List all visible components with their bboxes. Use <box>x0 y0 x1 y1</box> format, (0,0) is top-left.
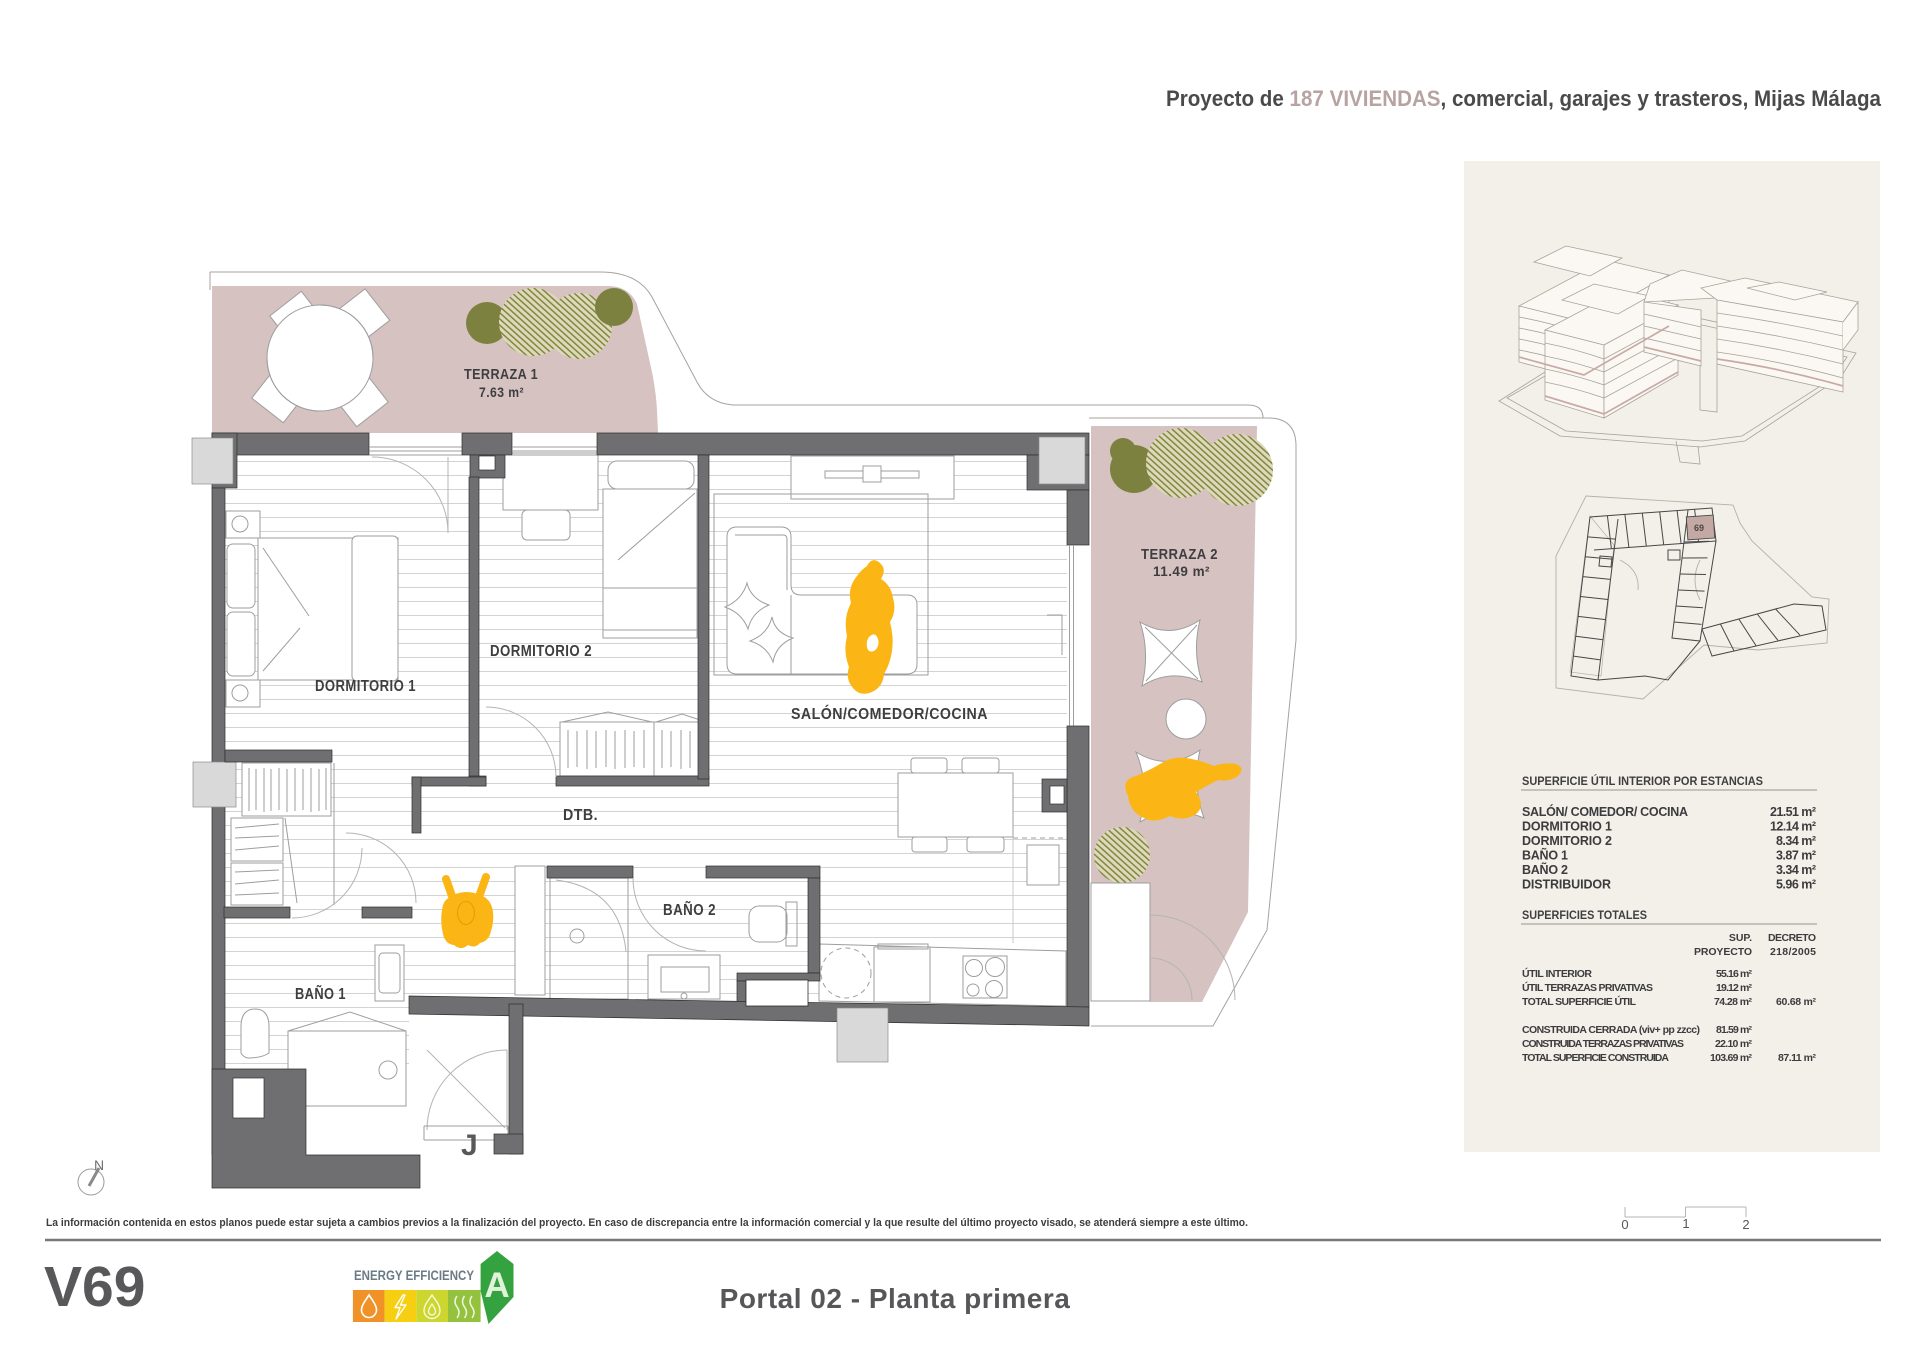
svg-text:TERRAZA 2: TERRAZA 2 <box>1141 546 1218 563</box>
svg-text:DTB.: DTB. <box>563 807 598 824</box>
svg-text:BAÑO 2: BAÑO 2 <box>1522 862 1568 877</box>
svg-text:CONSTRUIDA TERRAZAS PRIVATIVAS: CONSTRUIDA TERRAZAS PRIVATIVAS <box>1522 1038 1684 1050</box>
svg-text:74.28 m²: 74.28 m² <box>1714 996 1753 1008</box>
svg-text:BAÑO 1: BAÑO 1 <box>295 985 346 1003</box>
svg-text:87.11 m²: 87.11 m² <box>1778 1052 1817 1064</box>
svg-text:DORMITORIO 1: DORMITORIO 1 <box>1522 820 1612 834</box>
svg-text:8.34 m²: 8.34 m² <box>1776 834 1816 848</box>
svg-text:60.68 m²: 60.68 m² <box>1776 996 1817 1008</box>
svg-text:TOTAL SUPERFICIE CONSTRUIDA: TOTAL SUPERFICIE CONSTRUIDA <box>1522 1052 1669 1064</box>
svg-text:SALÓN/COMEDOR/COCINA: SALÓN/COMEDOR/COCINA <box>791 705 988 723</box>
svg-text:103.69 m²: 103.69 m² <box>1710 1052 1753 1064</box>
svg-text:3.34 m²: 3.34 m² <box>1776 863 1816 877</box>
svg-text:A: A <box>484 1266 509 1305</box>
svg-text:12.14 m²: 12.14 m² <box>1770 820 1816 834</box>
svg-text:218/2005: 218/2005 <box>1770 946 1816 958</box>
svg-text:DORMITORIO 2: DORMITORIO 2 <box>1522 834 1612 848</box>
svg-text:81.59 m²: 81.59 m² <box>1716 1024 1753 1036</box>
svg-text:DISTRIBUIDOR: DISTRIBUIDOR <box>1522 878 1611 892</box>
svg-text:DECRETO: DECRETO <box>1768 932 1816 944</box>
svg-text:DORMITORIO 2: DORMITORIO 2 <box>490 643 592 660</box>
svg-text:SUPERFICIES TOTALES: SUPERFICIES TOTALES <box>1522 908 1647 922</box>
svg-text:55.16 m²: 55.16 m² <box>1716 968 1753 980</box>
svg-text:0: 0 <box>1621 1217 1628 1232</box>
svg-text:CONSTRUIDA CERRADA (viv+ pp zz: CONSTRUIDA CERRADA (viv+ pp zzcc) <box>1522 1024 1700 1036</box>
svg-text:N: N <box>94 1157 104 1173</box>
svg-text:21.51 m²: 21.51 m² <box>1770 805 1816 819</box>
svg-text:ÚTIL TERRAZAS PRIVATIVAS: ÚTIL TERRAZAS PRIVATIVAS <box>1522 981 1653 994</box>
svg-text:5.96 m²: 5.96 m² <box>1776 878 1816 892</box>
svg-text:ENERGY EFFICIENCY: ENERGY EFFICIENCY <box>354 1268 474 1283</box>
svg-text:BAÑO 2: BAÑO 2 <box>663 901 716 919</box>
svg-text:19.12 m²: 19.12 m² <box>1716 982 1753 994</box>
svg-text:J: J <box>461 1129 478 1162</box>
svg-text:3.87 m²: 3.87 m² <box>1776 849 1816 863</box>
svg-text:ÚTIL INTERIOR: ÚTIL INTERIOR <box>1522 967 1592 980</box>
svg-text:SALÓN/ COMEDOR/ COCINA: SALÓN/ COMEDOR/ COCINA <box>1522 804 1688 819</box>
svg-text:Portal 02 - Planta primera: Portal 02 - Planta primera <box>720 1283 1071 1314</box>
svg-text:V69: V69 <box>44 1255 145 1319</box>
svg-text:22.10 m²: 22.10 m² <box>1715 1038 1753 1050</box>
svg-text:PROYECTO: PROYECTO <box>1694 946 1752 958</box>
svg-text:TOTAL SUPERFICIE ÚTIL: TOTAL SUPERFICIE ÚTIL <box>1522 995 1637 1008</box>
svg-text:69: 69 <box>1694 523 1704 533</box>
svg-text:2: 2 <box>1742 1217 1749 1232</box>
svg-text:SUPERFICIE ÚTIL INTERIOR POR E: SUPERFICIE ÚTIL INTERIOR POR ESTANCIAS <box>1522 773 1763 788</box>
svg-text:TERRAZA 1: TERRAZA 1 <box>464 366 538 383</box>
svg-text:Proyecto de 187 VIVIENDAS, com: Proyecto de 187 VIVIENDAS, comercial, ga… <box>1166 86 1881 111</box>
svg-text:SUP.: SUP. <box>1729 932 1752 944</box>
svg-text:DORMITORIO 1: DORMITORIO 1 <box>315 678 416 695</box>
svg-text:La información contenida en es: La información contenida en estos planos… <box>46 1217 1248 1229</box>
svg-text:11.49 m²: 11.49 m² <box>1153 563 1210 579</box>
svg-text:7.63 m²: 7.63 m² <box>479 384 524 400</box>
svg-text:1: 1 <box>1682 1216 1689 1231</box>
svg-text:BAÑO 1: BAÑO 1 <box>1522 848 1568 863</box>
